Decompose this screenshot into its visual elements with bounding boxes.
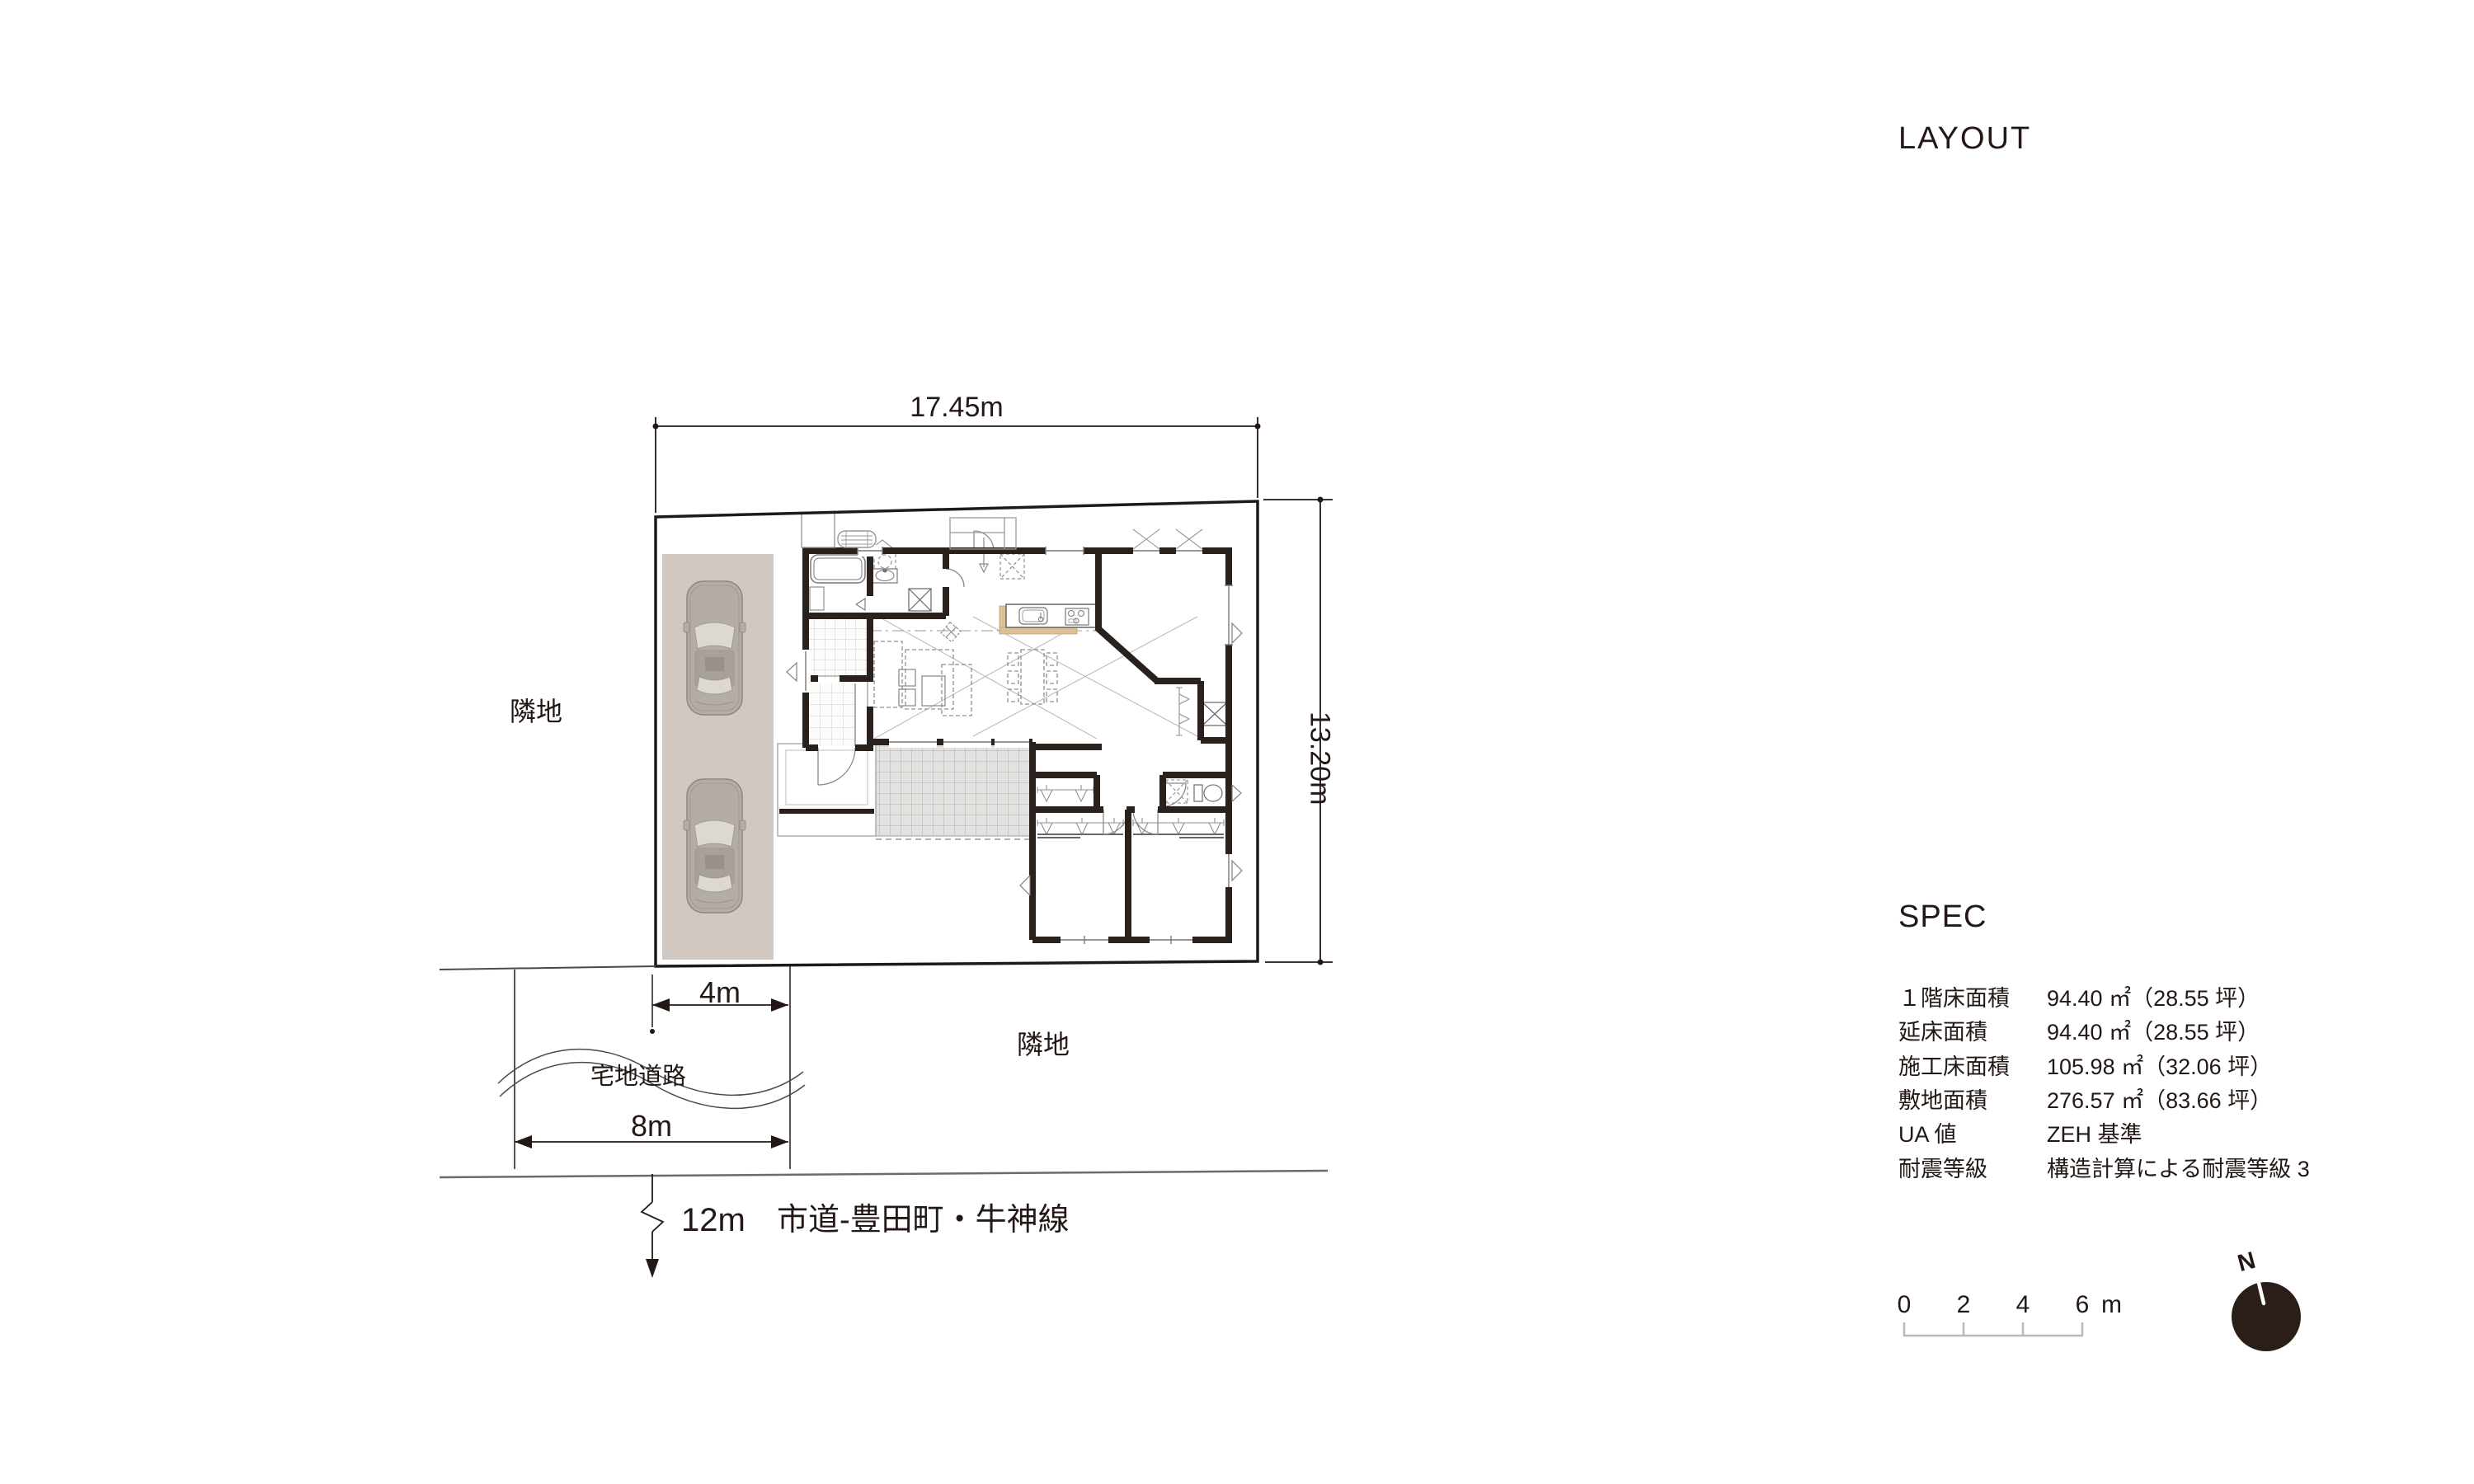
entrance-porch [778, 744, 876, 836]
page-title: LAYOUT [1898, 122, 2031, 157]
utility-tile-floor [808, 618, 870, 679]
dim-depth-label: 13.20m [1304, 701, 1334, 816]
adjacent-land-label-right: 隣地 [1017, 1031, 1070, 1059]
scale-bar [1903, 1322, 2083, 1336]
road-name-label: 市道-豊田町・牛神線 [777, 1204, 1070, 1238]
scale-tick-label: 4 [2006, 1291, 2039, 1318]
spec-row-label: 敷地面積 [1898, 1089, 1987, 1114]
dim-road-width-label: 12m [681, 1202, 745, 1238]
spec-row-label: 延床面積 [1898, 1021, 1987, 1045]
car-icon [684, 779, 745, 913]
spec-row-label: １階床面積 [1898, 987, 2010, 1012]
spec-row-value: 94.40 ㎡（28.55 坪） [2047, 1021, 2260, 1045]
scale-tick-label: 2 [1947, 1291, 1980, 1318]
residential-road-label: 宅地道路 [590, 1064, 686, 1091]
spec-row-value: ZEH 基準 [2047, 1123, 2142, 1148]
spec-row-label: UA 値 [1898, 1123, 1957, 1148]
car-icon [684, 581, 745, 715]
spec-row-value: 構造計算による耐震等級 3 [2047, 1158, 2310, 1182]
dim-width-label: 17.45m [895, 392, 1018, 423]
spec-row-label: 耐震等級 [1898, 1158, 1987, 1182]
scale-tick-label: 0 [1888, 1291, 1921, 1318]
north-compass-icon [2232, 1280, 2301, 1351]
toilet-icon [1194, 785, 1222, 801]
spec-row-value: 94.40 ㎡（28.55 坪） [2047, 987, 2260, 1012]
scale-unit-label: m [2101, 1291, 2122, 1318]
floor-plan-svg [0, 0, 2474, 1484]
scale-tick-label: 6 [2066, 1291, 2099, 1318]
adjacent-land-label-left: 隣地 [510, 697, 562, 726]
equipment-units [802, 513, 876, 547]
genkan-tile-floor [808, 683, 855, 746]
spec-heading: SPEC [1898, 900, 1987, 935]
dim-frontage-label: 8m [610, 1110, 693, 1143]
dim-parking-label: 4m [679, 976, 761, 1009]
spec-row-value: 105.98 ㎡（32.06 坪） [2047, 1055, 2272, 1080]
spec-row-value: 276.57 ㎡（83.66 坪） [2047, 1089, 2272, 1114]
spec-row-label: 施工床面積 [1898, 1055, 2010, 1080]
vanity-sink-icon [872, 569, 897, 583]
site-layout-page: LAYOUT 17.45m 13.20m 隣地 隣地 4m 宅地道路 8m 12… [0, 0, 2474, 1484]
